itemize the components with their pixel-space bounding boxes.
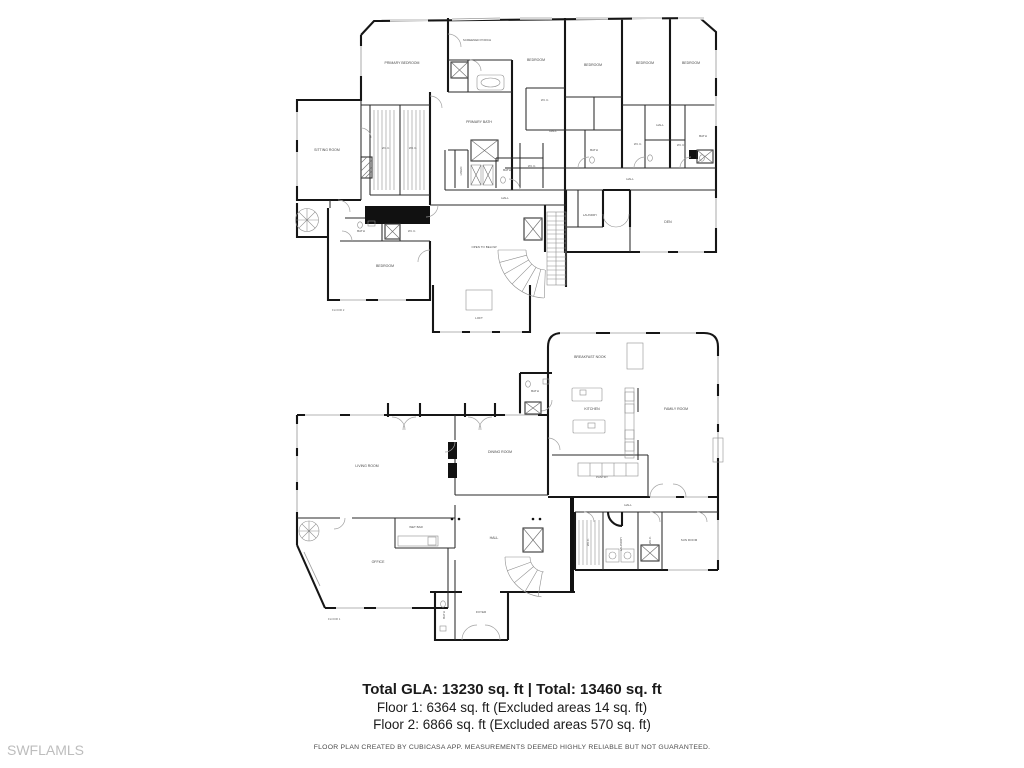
curved-nook-wall xyxy=(608,512,622,526)
room-label: OFFICE xyxy=(372,560,385,564)
floor1-area-line: Floor 1: 6364 sq. ft (Excluded areas 14 … xyxy=(0,699,1024,716)
floor1-windows xyxy=(297,333,723,608)
toilet-icon xyxy=(501,177,506,183)
spiral-stair-icon xyxy=(296,209,319,232)
fridge-icon xyxy=(627,343,643,369)
disclaimer-text: FLOOR PLAN CREATED BY CUBICASA APP. MEAS… xyxy=(0,744,1024,751)
room-label: PRIMARY BEDROOM xyxy=(385,61,420,65)
room-label: W.I.C. xyxy=(528,164,536,168)
room-label: HALL xyxy=(501,196,509,200)
room-label: BEDROOM xyxy=(527,58,545,62)
area-summary: Total GLA: 13230 sq. ft | Total: 13460 s… xyxy=(0,681,1024,733)
kitchen-island-icon xyxy=(572,388,602,401)
room-label: FOYER xyxy=(476,610,487,614)
room-label: LAUNDRY xyxy=(619,537,623,551)
kitchen-island-icon xyxy=(573,420,605,433)
room-label: BATH xyxy=(442,611,446,619)
room-label: HALL xyxy=(656,123,664,127)
room-label: BEDROOM xyxy=(584,63,602,67)
wet-bar-counter xyxy=(398,536,438,546)
column-dot xyxy=(451,518,454,521)
room-label: SUN ROOM xyxy=(681,538,698,542)
floor2-windows xyxy=(297,18,716,332)
room-label: SCREENED PORCH xyxy=(463,38,491,42)
floor1-doors xyxy=(334,400,707,640)
room-label: PRIMARY BATH xyxy=(466,120,492,124)
room-label: BREAKFAST NOOK xyxy=(574,355,606,359)
room-label: BATH xyxy=(503,168,511,172)
floor2-doors xyxy=(338,34,691,262)
room-label: HALL xyxy=(549,129,557,133)
room-label: LOFT xyxy=(475,316,483,320)
room-label: DINING ROOM xyxy=(488,450,512,454)
elevator-icon xyxy=(523,528,543,552)
curved-stair-icon xyxy=(498,250,545,298)
spiral-stair-icon xyxy=(299,521,319,541)
room-label: BATH xyxy=(531,389,539,393)
room-label: FAMILY ROOM xyxy=(664,407,688,411)
room-label: LIVING ROOM xyxy=(355,464,378,468)
room-label: OPEN TO BELOW xyxy=(471,245,496,249)
floor2-plan: PRIMARY BEDROOM SCREENED PORCH BEDROOM B… xyxy=(296,18,717,373)
total-gla-line: Total GLA: 13230 sq. ft | Total: 13460 s… xyxy=(0,681,1024,699)
room-label: BEDROOM xyxy=(376,264,394,268)
elevator-icon xyxy=(524,218,542,240)
room-label: HALL xyxy=(624,503,632,507)
room-label: W.I.C. xyxy=(586,538,590,546)
floor-tag: FLOOR 2 xyxy=(332,308,345,312)
curved-stair-icon xyxy=(505,557,544,597)
room-label: SITTING ROOM xyxy=(314,148,340,152)
room-label: LAUNDRY xyxy=(583,213,597,217)
room-label: LINEN xyxy=(459,167,463,176)
toilet-icon xyxy=(526,381,531,387)
floor-plan-page: { "watermark": "SWFLAMLS", "summary": { … xyxy=(0,0,1024,768)
counter xyxy=(625,388,634,458)
closet-rails xyxy=(374,110,424,190)
room-label: W.I.C. xyxy=(648,536,652,544)
room-label: BEDROOM xyxy=(636,61,654,65)
room-label: W.I.C. xyxy=(382,146,390,150)
room-label: BATH xyxy=(357,229,365,233)
floor1-stairs xyxy=(299,521,544,597)
room-label: W.I.C. xyxy=(634,142,642,146)
floor2-fixtures xyxy=(358,62,713,310)
room-label: W.I.C. xyxy=(677,143,685,147)
room-label: PANTRY xyxy=(596,475,608,479)
floor-tag: FLOOR 1 xyxy=(328,617,341,621)
floor1-fixtures xyxy=(398,343,659,631)
room-label: BATH xyxy=(590,148,598,152)
room-label: BATH xyxy=(699,134,707,138)
floor1-plan: BREAKFAST NOOK KITCHEN FAMILY ROOM BATH … xyxy=(297,333,723,640)
room-label: BEDROOM xyxy=(682,61,700,65)
pantry-counter xyxy=(578,463,638,476)
room-label: W.I.C. xyxy=(408,229,416,233)
room-label: HALL xyxy=(626,177,634,181)
room-label: HALL xyxy=(490,536,499,540)
room-label: DEN xyxy=(664,220,672,224)
watermark: SWFLAMLS xyxy=(7,742,84,758)
room-label: W.I.C. xyxy=(409,146,417,150)
room-label: KITCHEN xyxy=(584,407,600,411)
room-label: W.I.C. xyxy=(541,98,549,102)
floor-plan-canvas: PRIMARY BEDROOM SCREENED PORCH BEDROOM B… xyxy=(0,0,1024,768)
room-label: WET BAR xyxy=(409,525,423,529)
floor2-area-line: Floor 2: 6866 sq. ft (Excluded areas 570… xyxy=(0,716,1024,733)
